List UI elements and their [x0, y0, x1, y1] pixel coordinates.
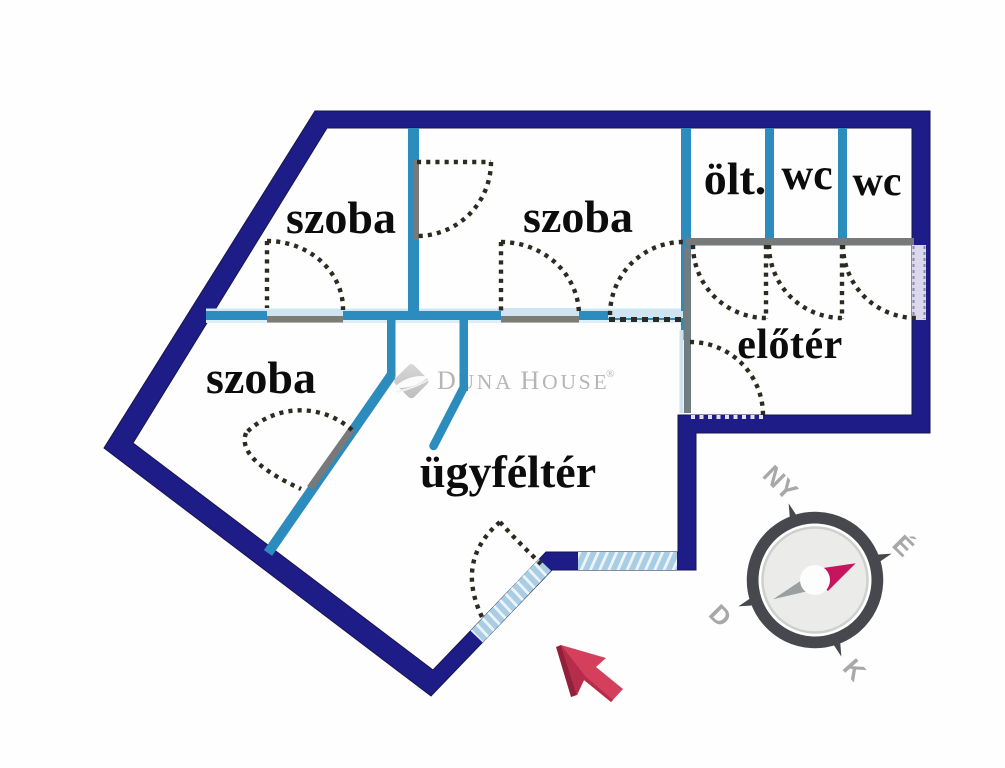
svg-text:wc: wc: [853, 159, 902, 205]
svg-text:szoba: szoba: [523, 191, 633, 242]
svg-text:szoba: szoba: [206, 352, 316, 403]
svg-text:előtér: előtér: [737, 322, 843, 368]
svg-text:szoba: szoba: [286, 192, 396, 243]
svg-text:ügyféltér: ügyféltér: [420, 446, 596, 497]
svg-text:ölt.: ölt.: [704, 153, 767, 204]
svg-text:wc: wc: [781, 150, 832, 199]
svg-text:®: ®: [606, 368, 614, 380]
